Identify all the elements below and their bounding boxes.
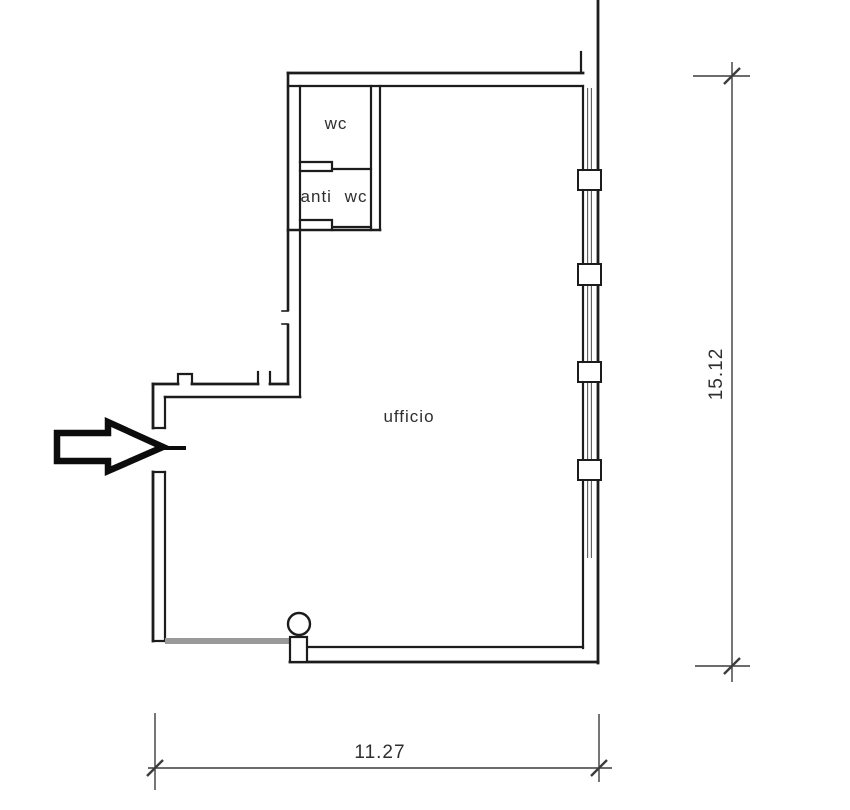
walls-group bbox=[153, 0, 598, 663]
window-glass-lines bbox=[588, 88, 592, 558]
dimension-label-width: 11.27 bbox=[354, 742, 405, 763]
floor-plan-canvas: wc anti wc ufficio 15.12 11.27 bbox=[0, 0, 850, 810]
dimension-label-height: 15.12 bbox=[706, 348, 727, 401]
column-circle bbox=[288, 613, 310, 635]
room-label-wc: wc bbox=[324, 114, 348, 133]
vestibule-east-wall bbox=[282, 73, 300, 397]
entrance-arrow-icon bbox=[57, 422, 186, 471]
room-label-anti-wc: anti wc bbox=[301, 187, 368, 206]
east-wall bbox=[583, 0, 598, 663]
floor-plan-page: wc anti wc ufficio 15.12 11.27 bbox=[0, 0, 850, 810]
vestibule-north-wall bbox=[153, 372, 300, 397]
wc-block-walls bbox=[288, 86, 380, 230]
west-wall bbox=[153, 384, 165, 641]
bottom-wall bbox=[290, 647, 598, 662]
room-label-ufficio: ufficio bbox=[383, 407, 434, 426]
top-wall bbox=[288, 52, 583, 86]
column-pier bbox=[290, 637, 307, 662]
column bbox=[288, 613, 310, 662]
